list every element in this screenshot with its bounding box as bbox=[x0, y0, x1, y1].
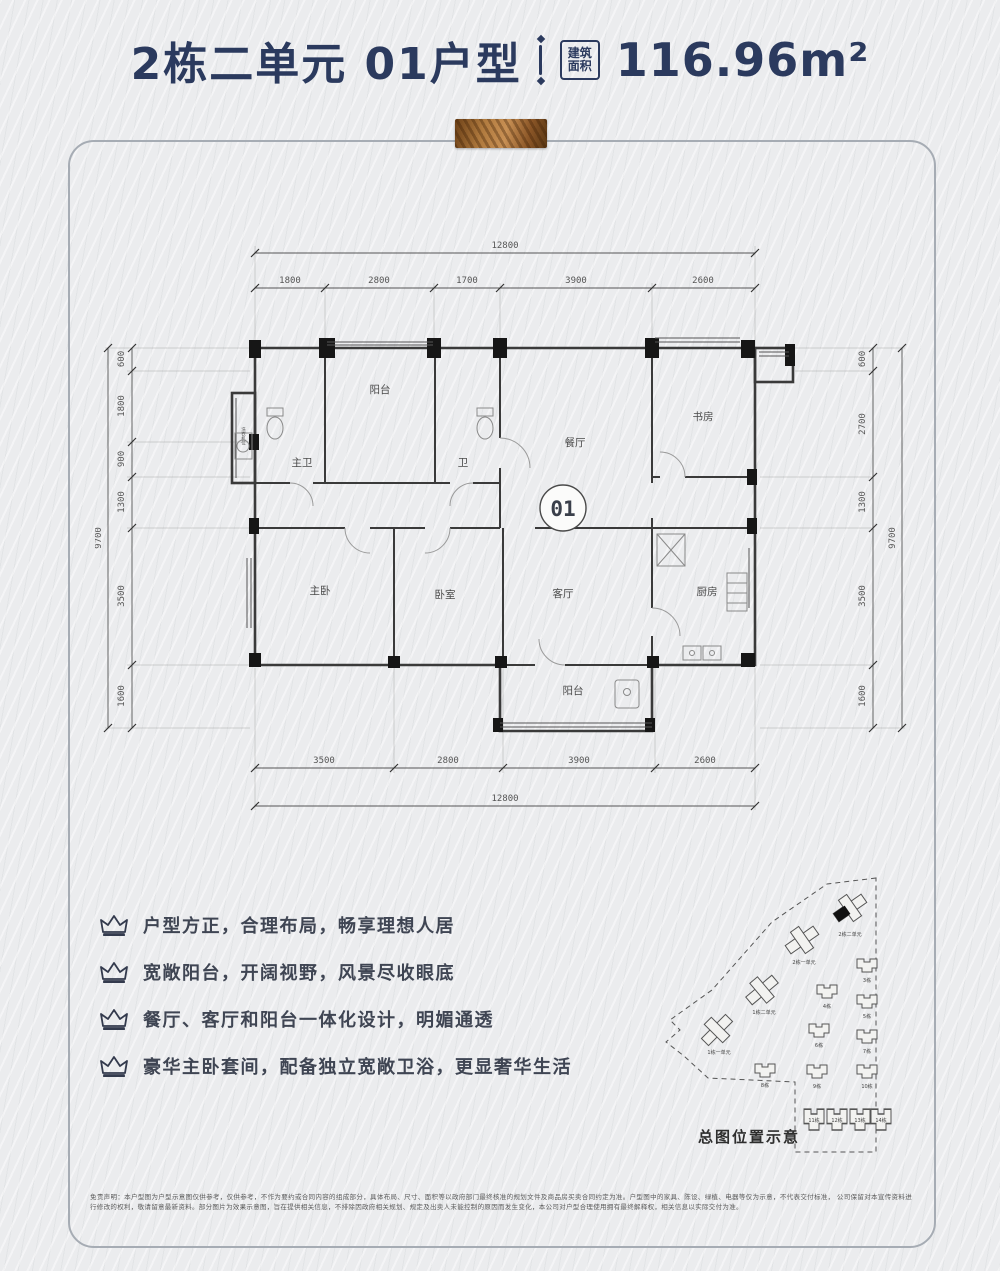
feature-item-1: 户型方正，合理布局，畅享理想人居 bbox=[100, 912, 572, 938]
dim-left-2: 1800 bbox=[117, 395, 127, 417]
svg-text:10栋: 10栋 bbox=[861, 1083, 872, 1090]
dim-bottom-1: 3500 bbox=[313, 756, 335, 766]
room-label-bath: 卫 bbox=[458, 457, 469, 469]
building-label: 1栋一单元 bbox=[707, 1049, 730, 1056]
area-badge: 建筑 面积 bbox=[560, 40, 600, 80]
feature-text: 户型方正，合理布局，畅享理想人居 bbox=[143, 912, 455, 938]
dim-left-6: 1600 bbox=[117, 685, 127, 707]
feature-item-2: 宽敞阳台，开阔视野，风景尽收眼底 bbox=[100, 959, 572, 985]
room-label-master-bed: 主卧 bbox=[310, 584, 331, 597]
room-label-balcony-top: 阳台 bbox=[370, 383, 391, 396]
siteplan: 2栋二单元 2栋一单元 1栋二单元 1栋一单元 3栋 4栋 5栋 6栋 7栋 8… bbox=[652, 860, 960, 1168]
feature-text: 餐厅、客厅和阳台一体化设计，明媚通透 bbox=[143, 1006, 494, 1032]
svg-text:13栋: 13栋 bbox=[854, 1117, 865, 1124]
wood-accent-bar bbox=[455, 119, 547, 148]
siteplan-caption: 总图位置示意 bbox=[698, 1128, 800, 1146]
dim-left-5: 3500 bbox=[117, 585, 127, 607]
svg-text:12栋: 12栋 bbox=[831, 1117, 842, 1124]
dim-left-1: 600 bbox=[117, 351, 127, 367]
dim-top-1: 1800 bbox=[279, 276, 301, 286]
dim-left-overall: 9700 bbox=[95, 527, 104, 549]
building-label: 1栋二单元 bbox=[752, 1009, 775, 1016]
room-label-balcony-bottom: 阳台 bbox=[563, 684, 584, 697]
svg-text:11栋: 11栋 bbox=[808, 1117, 819, 1124]
dim-right-2: 2700 bbox=[858, 413, 868, 435]
feature-item-3: 餐厅、客厅和阳台一体化设计，明媚通透 bbox=[100, 1006, 572, 1032]
dim-bottom-4: 2600 bbox=[694, 756, 716, 766]
dim-left-3: 900 bbox=[117, 451, 127, 467]
unit-badge-number: 01 bbox=[550, 497, 575, 521]
floorplan: 12800 1800 2800 1700 3900 2600 3500 2800… bbox=[95, 228, 915, 843]
dims-left: 600 1800 900 1300 3500 1600 9700 bbox=[95, 344, 136, 732]
dim-top-4: 3900 bbox=[565, 276, 587, 286]
disclaimer: 免责声明：本户型图为户型示意图仅供参考，仅供参考，不作为要约或合同内容的组成部分… bbox=[90, 1192, 912, 1212]
doors bbox=[290, 438, 685, 665]
dim-bottom-3: 3900 bbox=[568, 756, 590, 766]
room-label-dining: 餐厅 bbox=[565, 436, 586, 449]
dims-top: 12800 1800 2800 1700 3900 2600 bbox=[251, 241, 759, 292]
wall-piers bbox=[249, 338, 795, 732]
crown-icon bbox=[100, 1008, 128, 1030]
header: 2栋二单元 01户型 建筑 面积 116.96m² bbox=[0, 28, 1000, 92]
crown-icon bbox=[100, 914, 128, 936]
svg-text:14栋: 14栋 bbox=[875, 1117, 886, 1124]
dim-top-5: 2600 bbox=[692, 276, 714, 286]
svg-text:5栋: 5栋 bbox=[863, 1013, 871, 1020]
divider-bar bbox=[539, 45, 542, 75]
dim-extension-lines bbox=[105, 246, 905, 810]
dims-bottom: 3500 2800 3900 2600 12800 bbox=[251, 756, 759, 810]
svg-text:7栋: 7栋 bbox=[863, 1048, 871, 1055]
room-label-bedroom: 卧室 bbox=[435, 588, 456, 601]
fixtures bbox=[235, 408, 747, 708]
walls bbox=[232, 348, 793, 731]
room-label-living: 客厅 bbox=[553, 587, 574, 600]
room-label-kitchen: 厨房 bbox=[697, 585, 718, 598]
building-1-1 bbox=[696, 1009, 738, 1051]
svg-text:6栋: 6栋 bbox=[815, 1042, 823, 1049]
svg-text:8栋: 8栋 bbox=[761, 1082, 769, 1089]
building-2-2 bbox=[829, 888, 872, 929]
dim-top-overall: 12800 bbox=[491, 241, 518, 251]
divider-dot-top bbox=[537, 35, 545, 43]
disclaimer-line1: 免责声明：本户型图为户型示意图仅供参考，仅供参考，不作为要约或合同内容的组成部分… bbox=[90, 1193, 834, 1201]
crown-icon bbox=[100, 1055, 128, 1077]
windows bbox=[236, 338, 789, 727]
room-label-utility: 洗衣机位 bbox=[241, 426, 246, 446]
dim-left-4: 1300 bbox=[117, 491, 127, 513]
dim-top-2: 2800 bbox=[368, 276, 390, 286]
area-badge-line2: 面积 bbox=[568, 60, 592, 73]
dim-right-1: 600 bbox=[858, 351, 868, 367]
flyer-page: 2栋二单元 01户型 建筑 面积 116.96m² 12800 180 bbox=[0, 0, 1000, 1271]
building-label: 2栋一单元 bbox=[792, 959, 815, 966]
room-label-master-bath: 主卫 bbox=[292, 457, 313, 469]
title-divider bbox=[538, 36, 544, 84]
dim-bottom-2: 2800 bbox=[437, 756, 459, 766]
building-label: 2栋二单元 bbox=[838, 931, 861, 938]
page-title: 2栋二单元 01户型 bbox=[131, 28, 522, 92]
svg-text:4栋: 4栋 bbox=[823, 1003, 831, 1010]
feature-item-4: 豪华主卧套间，配备独立宽敞卫浴，更显奢华生活 bbox=[100, 1053, 572, 1079]
divider-dot-bottom bbox=[537, 77, 545, 85]
feature-text: 宽敞阳台，开阔视野，风景尽收眼底 bbox=[143, 959, 455, 985]
dim-right-overall: 9700 bbox=[888, 527, 898, 549]
dims-right: 600 2700 1300 3500 1600 9700 bbox=[858, 344, 906, 732]
building-1-2 bbox=[741, 969, 784, 1011]
feature-text: 豪华主卧套间，配备独立宽敞卫浴，更显奢华生活 bbox=[143, 1053, 572, 1079]
dim-right-5: 1600 bbox=[858, 685, 868, 707]
svg-text:9栋: 9栋 bbox=[813, 1083, 821, 1090]
dim-right-3: 1300 bbox=[858, 491, 868, 513]
svg-text:3栋: 3栋 bbox=[863, 977, 871, 984]
crown-icon bbox=[100, 961, 128, 983]
unit-badge: 01 bbox=[540, 485, 586, 531]
room-labels: 阳台 主卫 卫 餐厅 书房 主卧 卧室 客厅 厨房 阳台 洗衣机位 bbox=[241, 383, 718, 697]
room-label-study: 书房 bbox=[693, 410, 714, 423]
area-value: 116.96m² bbox=[616, 33, 870, 87]
dim-right-4: 3500 bbox=[858, 585, 868, 607]
dim-bottom-overall: 12800 bbox=[491, 794, 518, 804]
building-2-1 bbox=[781, 920, 824, 961]
dim-top-3: 1700 bbox=[456, 276, 478, 286]
feature-list: 户型方正，合理布局，畅享理想人居 宽敞阳台，开阔视野，风景尽收眼底 餐厅、客厅和… bbox=[100, 912, 572, 1079]
